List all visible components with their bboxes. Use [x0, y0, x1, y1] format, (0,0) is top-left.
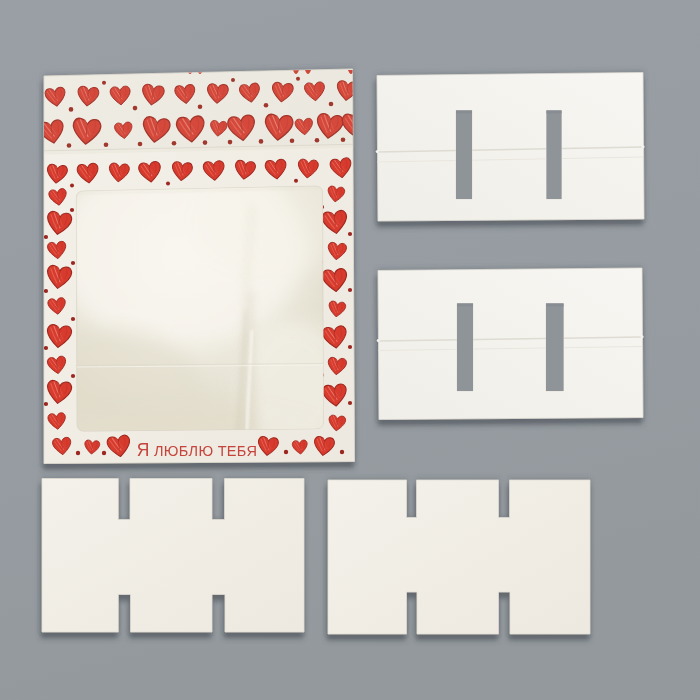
svg-text:Я ЛЮБЛЮ ТЕБЯ: Я ЛЮБЛЮ ТЕБЯ	[137, 440, 258, 460]
